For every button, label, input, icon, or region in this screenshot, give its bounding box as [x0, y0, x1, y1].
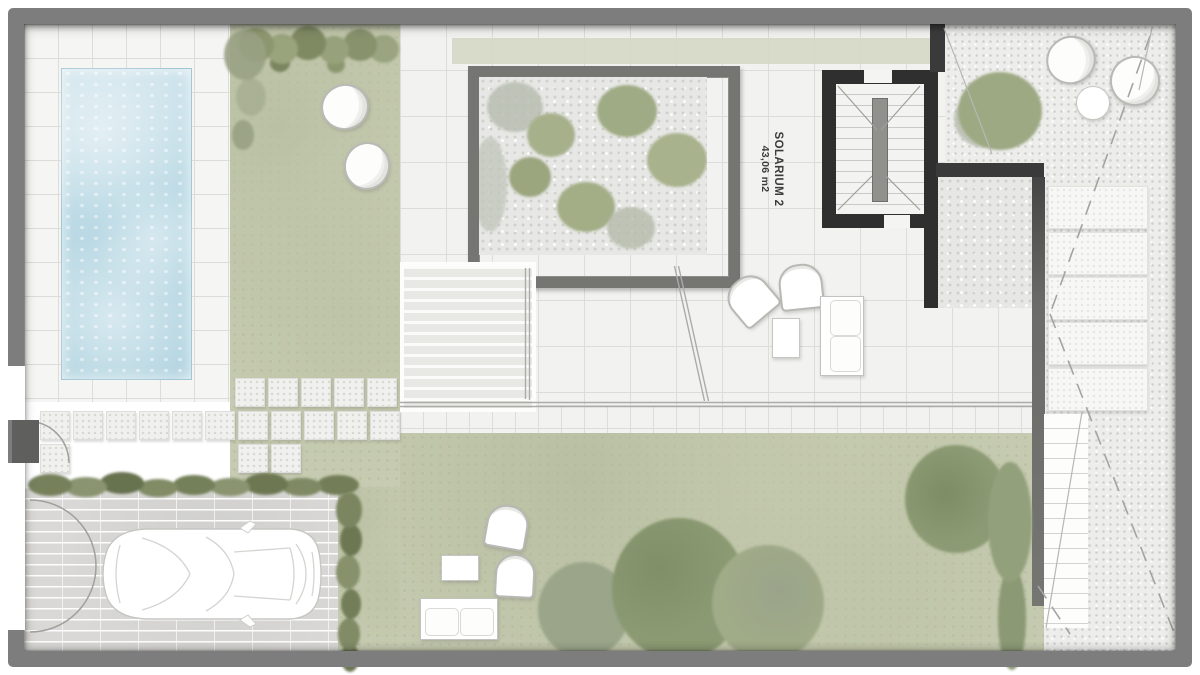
roof-dashed-lines	[1038, 36, 1180, 648]
gate-opening-pedestrian	[6, 366, 25, 420]
parapet-lines	[400, 266, 1032, 407]
site-plan: SOLARIUM 2 43,06 m2	[0, 0, 1200, 675]
linework-overlay	[0, 0, 1200, 675]
car	[103, 521, 321, 627]
gate-opening-driveway	[6, 463, 25, 630]
gate-post	[12, 420, 39, 463]
stair-diagonals	[838, 86, 920, 210]
